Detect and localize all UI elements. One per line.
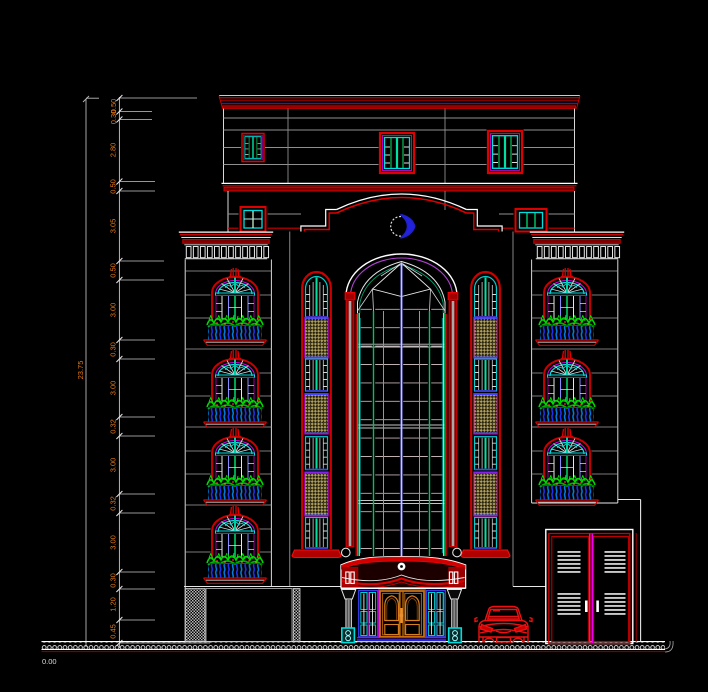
svg-text:0.32: 0.32	[109, 419, 118, 434]
svg-text:3.00: 3.00	[109, 458, 118, 473]
svg-text:0.30: 0.30	[109, 573, 118, 588]
svg-text:0.30: 0.30	[109, 110, 118, 125]
svg-text:0.00: 0.00	[42, 657, 57, 666]
svg-text:0.30: 0.30	[109, 342, 118, 357]
svg-text:2.80: 2.80	[109, 143, 118, 158]
svg-text:3.05: 3.05	[109, 219, 118, 234]
svg-text:0.45: 0.45	[109, 624, 118, 639]
svg-text:23.75: 23.75	[76, 361, 85, 380]
svg-text:3.00: 3.00	[109, 303, 118, 318]
svg-text:1.20: 1.20	[109, 597, 118, 612]
svg-text:3.00: 3.00	[109, 381, 118, 396]
svg-text:0.32: 0.32	[109, 496, 118, 511]
svg-text:0.50: 0.50	[109, 263, 118, 278]
svg-text:0.50: 0.50	[109, 179, 118, 194]
svg-text:3.00: 3.00	[109, 535, 118, 550]
